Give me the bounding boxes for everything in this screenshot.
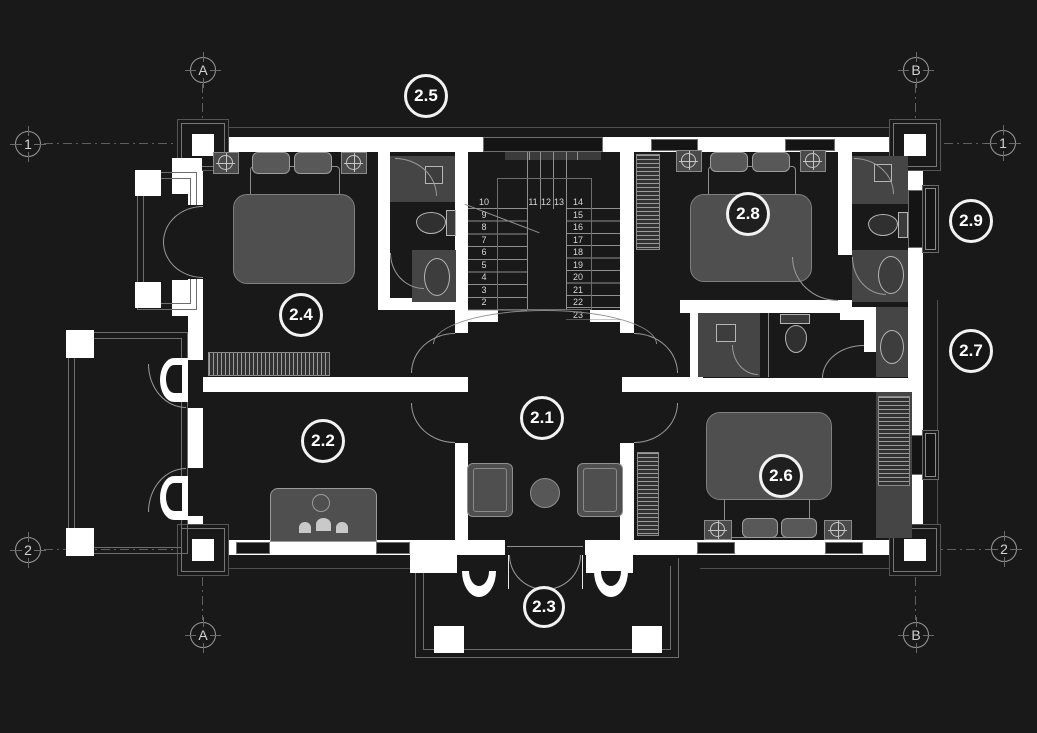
bed-pillow — [710, 152, 748, 172]
stair-step-number: 18 — [569, 247, 587, 257]
wall-bath27-divider — [864, 307, 876, 352]
room-label: 2.3 — [532, 597, 556, 617]
grid-marker-a-top: A — [190, 57, 216, 83]
grid-marker-b-top: B — [903, 57, 929, 83]
room-marker-26: 2.6 — [759, 454, 803, 498]
room-label: 2.2 — [311, 431, 335, 451]
lamp-icon — [805, 153, 820, 168]
stair-step-number: 4 — [475, 272, 493, 282]
room-marker-29: 2.9 — [949, 199, 993, 243]
grid-marker-2-left: 2 — [15, 537, 41, 563]
room-label: 2.8 — [736, 204, 760, 224]
lamp-icon — [346, 155, 361, 170]
wall-bath24-left — [378, 152, 390, 310]
ground-line — [228, 568, 418, 569]
stair-step-number: 10 — [475, 197, 493, 207]
toilet-bowl — [785, 325, 807, 353]
grid-label: 2 — [22, 542, 34, 558]
bed-pillow — [742, 518, 778, 538]
grid-label: B — [909, 62, 922, 78]
wall-stair-right — [620, 152, 634, 310]
mirror-icon — [312, 494, 330, 512]
decor-item — [316, 518, 331, 531]
balcony-column — [135, 282, 161, 308]
grid-marker-1-left: 1 — [15, 131, 41, 157]
window-29 — [908, 190, 923, 248]
wall-under-28 — [680, 300, 840, 313]
lamp-icon — [218, 155, 233, 170]
armchair — [467, 463, 513, 517]
room-marker-22: 2.2 — [301, 419, 345, 463]
toilet-tank — [446, 210, 456, 236]
bed-pillow — [294, 152, 332, 174]
door-opening — [188, 468, 203, 516]
sink — [880, 330, 904, 364]
radiator-28 — [636, 154, 660, 250]
stair-step-number: 20 — [569, 272, 587, 282]
axis-b-top — [915, 84, 916, 126]
floor-plan: A B A B 1 1 2 2 — [0, 0, 1037, 733]
stair-step-number: 22 — [569, 297, 587, 307]
porch-pilaster — [410, 541, 457, 573]
stair-step-number: 19 — [569, 260, 587, 270]
axis-a-top — [202, 84, 203, 126]
balcony-column — [66, 528, 94, 556]
decor-item — [336, 522, 348, 533]
grid-label: 1 — [22, 136, 34, 152]
window-22-right — [376, 542, 410, 554]
stair-step-number: 13 — [550, 197, 568, 207]
stair-step-number: 17 — [569, 235, 587, 245]
stair-step-number: 14 — [569, 197, 587, 207]
decor-item — [299, 522, 311, 533]
wall-between-24-22 — [203, 377, 468, 392]
partition-line — [768, 313, 769, 377]
bed-pillow — [781, 518, 817, 538]
round-table — [530, 478, 560, 508]
lamp-icon — [710, 522, 725, 537]
toilet-tank — [898, 212, 908, 238]
stair-step-number: 16 — [569, 222, 587, 232]
door-leaf — [582, 555, 583, 589]
door-arc-26 — [634, 403, 678, 443]
column-core — [601, 571, 621, 586]
grid-label: A — [196, 627, 209, 643]
sink — [424, 258, 450, 296]
room-marker-21: 2.1 — [520, 396, 564, 440]
room-marker-25: 2.5 — [404, 74, 448, 118]
lamp-icon — [681, 153, 696, 168]
radiator-24 — [208, 352, 330, 376]
armchair — [577, 463, 623, 517]
room-marker-27: 2.7 — [949, 329, 993, 373]
sink-square — [716, 324, 736, 342]
window-stair — [483, 137, 603, 152]
stair-step-number: 2 — [475, 297, 493, 307]
toilet-bowl — [416, 212, 446, 234]
bed-pillow — [252, 152, 290, 174]
grid-label: A — [196, 62, 209, 78]
window-26-right — [825, 542, 863, 554]
armchair-seat — [583, 468, 617, 512]
threshold-line — [507, 546, 583, 547]
wall-stair-left — [455, 152, 468, 310]
door-arc-22 — [411, 403, 455, 443]
door-arc — [792, 257, 838, 301]
window-22-left — [236, 542, 270, 554]
room-marker-24: 2.4 — [279, 293, 323, 337]
grid-marker-1-right: 1 — [990, 130, 1016, 156]
mullion — [577, 152, 578, 160]
room-label: 2.7 — [959, 341, 983, 361]
wall-28-29 — [838, 152, 852, 255]
toilet-bowl — [868, 214, 898, 236]
room-label: 2.6 — [769, 466, 793, 486]
column-core — [904, 134, 926, 156]
grid-marker-a-bottom: A — [190, 622, 216, 648]
column-core — [192, 539, 214, 561]
stair-step-number: 7 — [475, 235, 493, 245]
window-26-side-frame — [925, 433, 936, 477]
room-label: 2.9 — [959, 211, 983, 231]
window-26-left — [697, 542, 735, 554]
stair-step-number: 5 — [475, 260, 493, 270]
grid-label: B — [909, 627, 922, 643]
toilet-tank — [780, 314, 810, 324]
room-label: 2.4 — [289, 305, 313, 325]
window-29-frame — [925, 188, 936, 250]
eaves-line — [185, 127, 935, 128]
axis-1-left — [44, 143, 184, 144]
lamp-icon — [830, 522, 845, 537]
wall-bath27-bottom — [678, 378, 908, 392]
porch-column — [632, 626, 662, 653]
door-arc — [390, 253, 424, 289]
column-core — [192, 134, 214, 156]
balcony-column — [135, 170, 161, 196]
stair-step-number: 9 — [475, 210, 493, 220]
door-arc-bath27 — [634, 333, 678, 373]
stair-step-number: 8 — [475, 222, 493, 232]
porch-pilaster — [586, 541, 633, 573]
porch-door-opening — [505, 540, 585, 555]
wall-bath27-left — [690, 313, 698, 377]
grid-marker-b-bottom: B — [903, 622, 929, 648]
room-marker-28: 2.8 — [726, 192, 770, 236]
column-core — [469, 571, 489, 586]
grid-marker-2-right: 2 — [991, 536, 1017, 562]
porch-column — [434, 626, 464, 653]
door-opening — [188, 360, 203, 408]
bed-24 — [233, 194, 355, 284]
grid-label: 2 — [998, 541, 1010, 557]
radiator-hall — [637, 452, 659, 536]
door-arc-24 — [411, 333, 455, 373]
radiator-26 — [878, 396, 910, 486]
room-marker-23: 2.3 — [523, 586, 565, 628]
room-label: 2.5 — [414, 86, 438, 106]
stair-step-number: 3 — [475, 285, 493, 295]
armchair-seat — [473, 468, 507, 512]
stair-step-number: 15 — [569, 210, 587, 220]
balcony-column — [66, 330, 94, 358]
stair-step-number: 21 — [569, 285, 587, 295]
room-label: 2.1 — [530, 408, 554, 428]
column-core — [904, 539, 926, 561]
stair-step-number: 6 — [475, 247, 493, 257]
ground-line — [937, 300, 938, 568]
bed-pillow — [752, 152, 790, 172]
grid-label: 1 — [997, 135, 1009, 151]
door-arc — [822, 345, 864, 378]
